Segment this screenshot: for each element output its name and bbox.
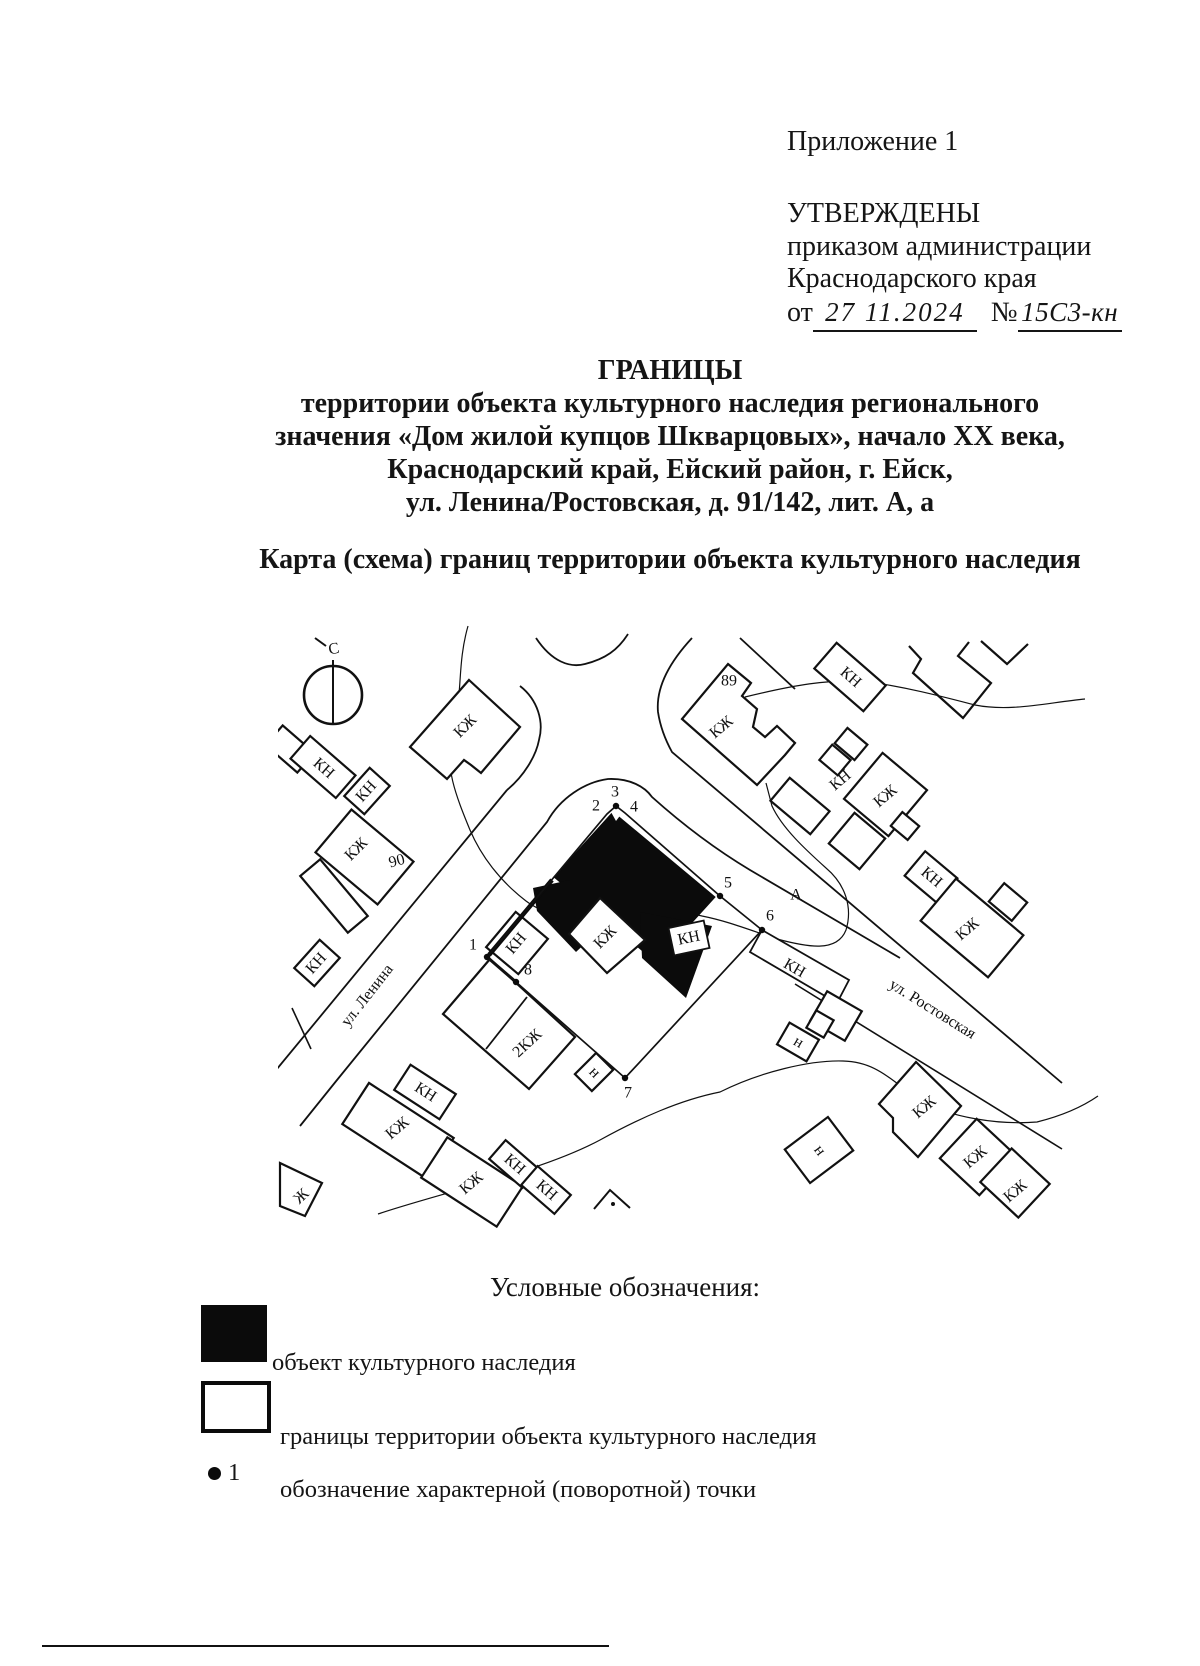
svg-text:А: А [790,887,802,904]
svg-text:С: С [327,640,340,659]
svg-text:ул. Ростовская: ул. Ростовская [886,976,979,1043]
svg-text:5: 5 [724,875,732,892]
svg-text:4: 4 [630,799,638,816]
svg-text:2: 2 [592,798,600,815]
svg-text:ул. Ленина: ул. Ленина [338,961,397,1030]
svg-text:6: 6 [766,908,774,925]
svg-text:3: 3 [611,784,619,801]
svg-text:89: 89 [721,673,737,690]
svg-text:8: 8 [524,962,532,979]
svg-text:1: 1 [469,937,477,954]
svg-text:7: 7 [624,1085,632,1102]
